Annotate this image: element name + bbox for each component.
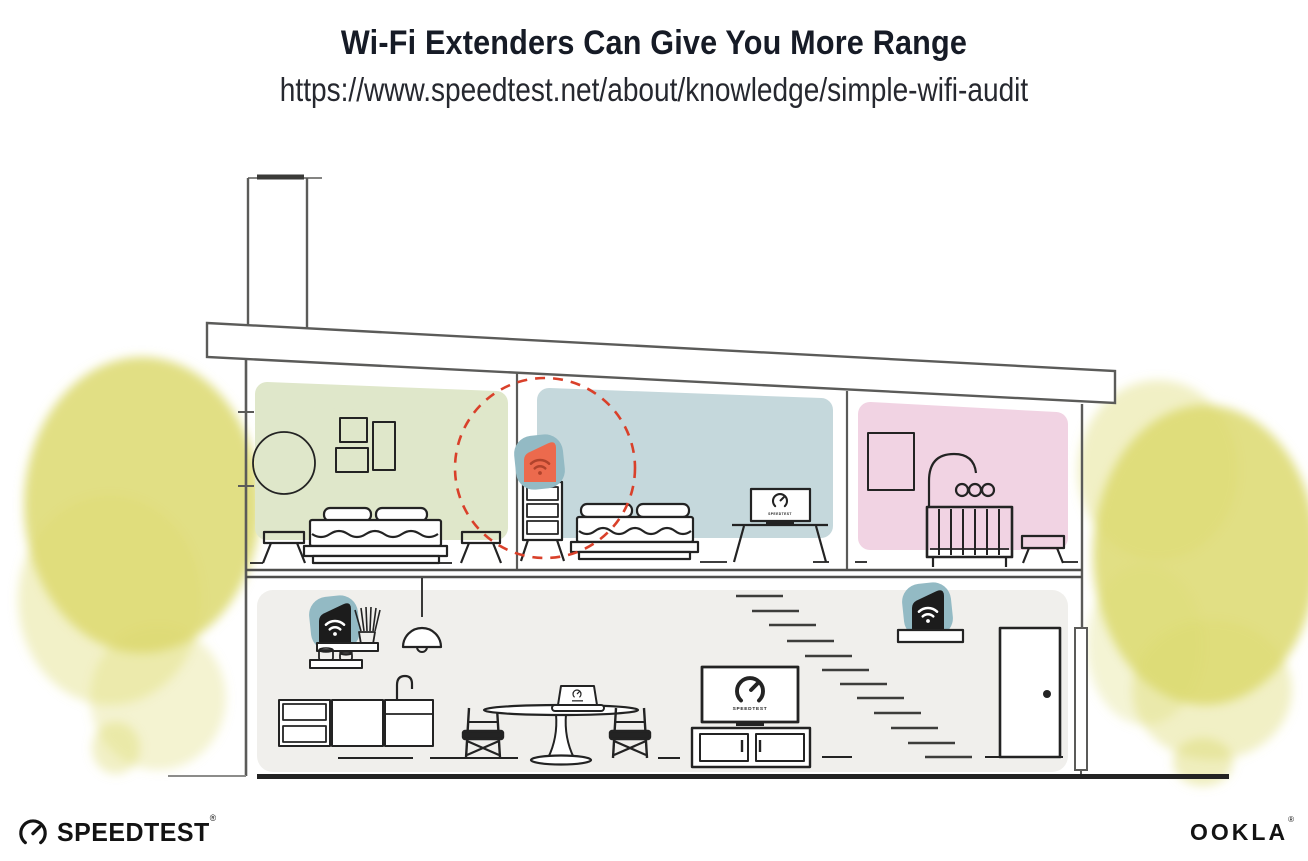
ookla-logo: OOKLA®: [1190, 819, 1294, 846]
speedtest-wordmark: SPEEDTEST®: [57, 817, 217, 848]
speedtest-logo: SPEEDTEST®: [18, 817, 223, 848]
door-knob: [1043, 690, 1051, 698]
bed-green: [304, 508, 447, 563]
dresser: [521, 482, 564, 561]
wall-right-lower-frame: [1075, 628, 1087, 770]
foliage-right: [1078, 380, 1308, 786]
floor-band: [246, 570, 1082, 577]
front-door: [1000, 628, 1060, 757]
ookla-wordmark: OOKLA: [1190, 819, 1288, 845]
wall-shelf-2: [310, 660, 362, 668]
registered-mark: ®: [210, 813, 217, 823]
media-console: [692, 728, 810, 767]
tv-livingroom: SPEEDTEST: [702, 667, 798, 726]
stairs-shelf: [898, 630, 963, 642]
registered-mark: ®: [1288, 815, 1294, 824]
foliage-left: [18, 357, 260, 774]
speedtest-gauge-icon: [18, 818, 48, 848]
tv-brand-label: SPEEDTEST: [768, 512, 792, 516]
chimney: [248, 175, 322, 330]
wifi-extender-upstairs: [512, 433, 566, 492]
tv-brand-label: SPEEDTEST: [733, 706, 768, 712]
ground-line: [168, 774, 1229, 779]
house-cutaway-illustration: SPEEDTEST: [0, 0, 1308, 861]
infographic-page: Wi-Fi Extenders Can Give You More Range …: [0, 0, 1308, 861]
